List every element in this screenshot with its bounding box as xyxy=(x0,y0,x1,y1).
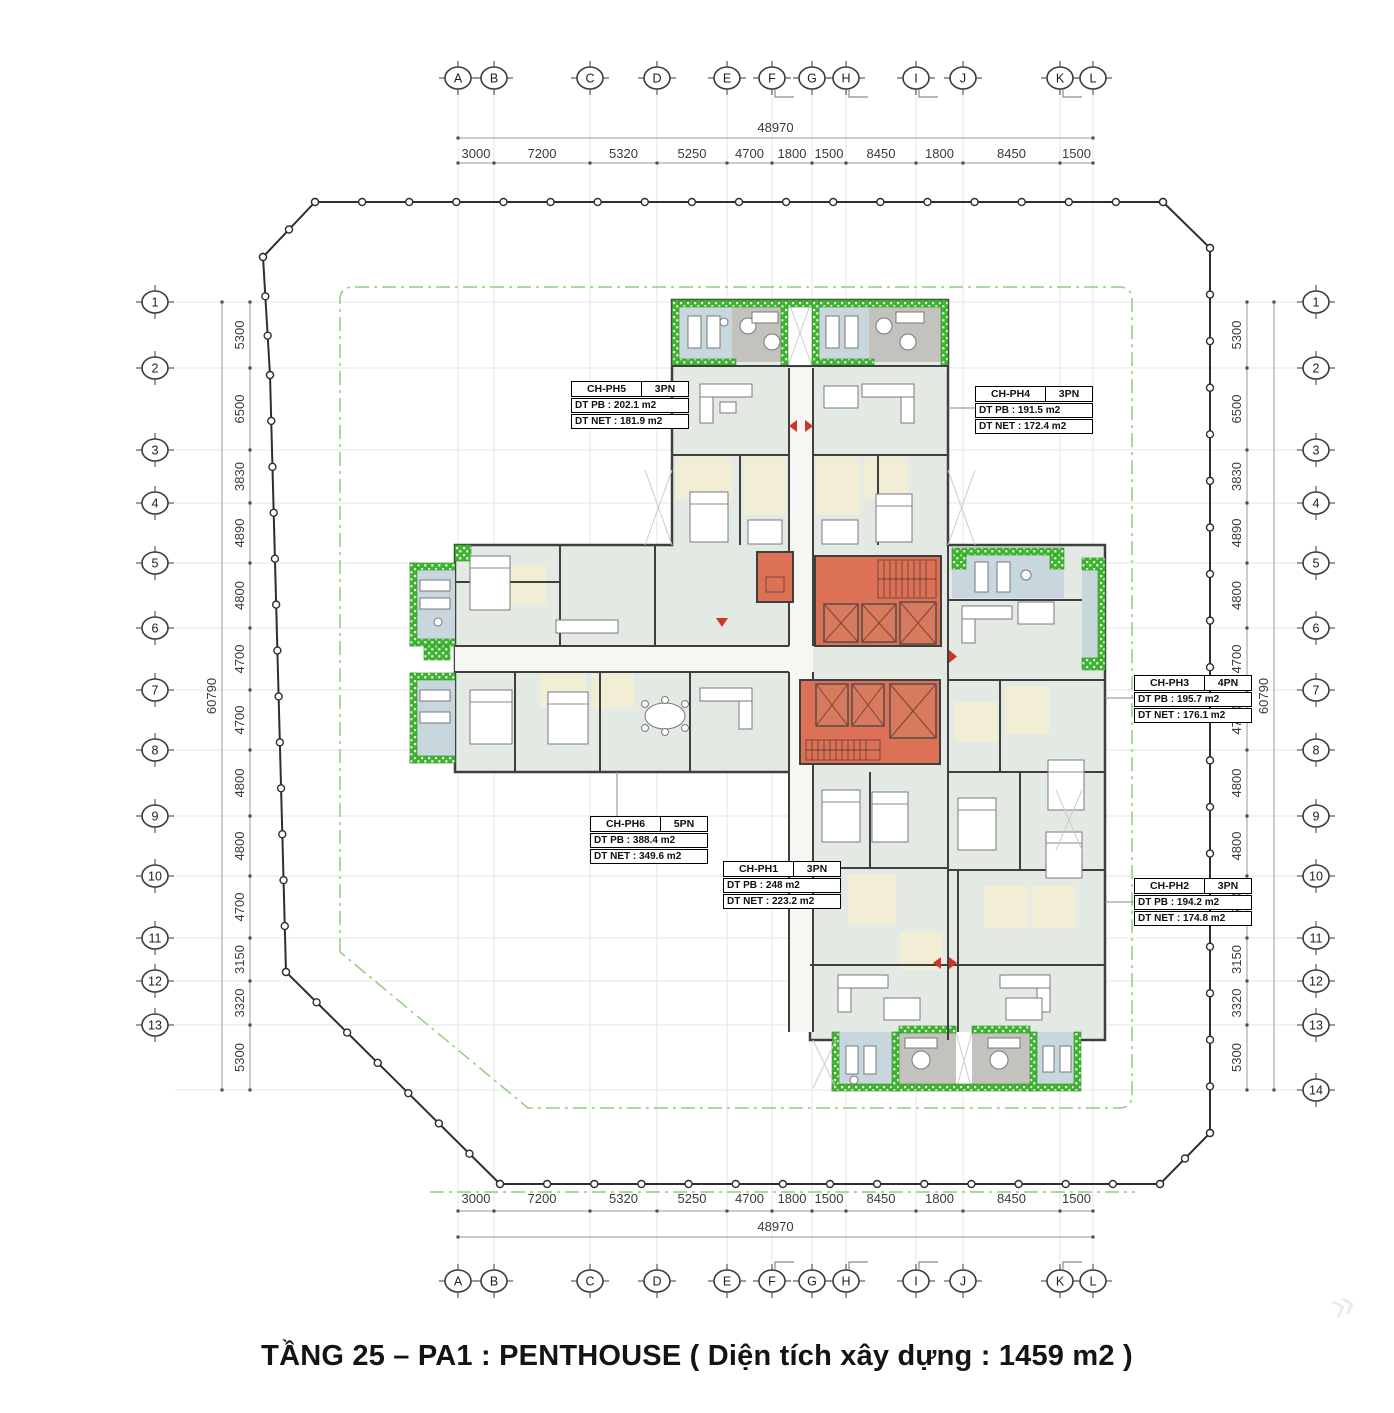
svg-text:5: 5 xyxy=(152,557,159,571)
axis-bubble-L: L xyxy=(1074,61,1112,95)
axis-bubble-14: 14 xyxy=(1297,1073,1335,1107)
svg-text:C: C xyxy=(585,72,594,86)
dimension-label: 4700 xyxy=(232,893,247,922)
svg-text:13: 13 xyxy=(1309,1019,1323,1033)
dimension-label: 5300 xyxy=(1229,321,1244,350)
apartment-net-area: DT NET : 349.6 m2 xyxy=(590,849,708,864)
dimension-label: 3830 xyxy=(232,462,247,491)
dimension-label: 1800 xyxy=(778,1191,807,1206)
axis-bubble-G: G xyxy=(793,1264,831,1298)
dimension-label: 1500 xyxy=(815,146,844,161)
dimension-label: 8450 xyxy=(867,146,896,161)
boundary-node xyxy=(1207,338,1214,345)
dimension-label: 3000 xyxy=(462,1191,491,1206)
svg-text:7: 7 xyxy=(152,684,159,698)
svg-text:G: G xyxy=(807,1275,817,1289)
svg-text:D: D xyxy=(652,1275,661,1289)
boundary-node xyxy=(1157,1181,1164,1188)
boundary-node xyxy=(779,1181,786,1188)
svg-text:11: 11 xyxy=(1310,932,1323,946)
dimension-label: 4890 xyxy=(232,519,247,548)
axis-bubble-B: B xyxy=(475,61,513,95)
dimension-label: 4700 xyxy=(232,645,247,674)
boundary-node xyxy=(594,199,601,206)
boundary-node xyxy=(638,1181,645,1188)
axis-bubble-7: 7 xyxy=(1297,673,1335,707)
dimension-label: 4800 xyxy=(232,581,247,610)
apartment-code: CH-PH2 xyxy=(1135,879,1205,893)
boundary-node xyxy=(1207,571,1214,578)
apartment-code: CH-PH3 xyxy=(1135,676,1205,690)
dimension-label: 5300 xyxy=(232,1043,247,1072)
apartment-net-area: DT NET : 176.1 m2 xyxy=(1134,708,1252,723)
boundary-node xyxy=(1207,384,1214,391)
boundary-node xyxy=(736,199,743,206)
apartment-label-ch-ph3: CH-PH34PN DT PB : 195.7 m2 DT NET : 176.… xyxy=(1134,675,1252,724)
apartment-gross-area: DT PB : 191.5 m2 xyxy=(975,403,1093,418)
boundary-node xyxy=(1207,990,1214,997)
boundary-node xyxy=(924,199,931,206)
boundary-node xyxy=(1112,199,1119,206)
axis-bubble-1: 1 xyxy=(1297,285,1335,319)
boundary-node xyxy=(1207,850,1214,857)
dimension-label: 8450 xyxy=(997,146,1026,161)
axis-bubble-K: K xyxy=(1041,61,1082,97)
axis-bubble-11: 11 xyxy=(1297,921,1335,955)
axis-bubble-C: C xyxy=(571,61,609,95)
boundary-node xyxy=(1015,1181,1022,1188)
apartment-code: CH-PH6 xyxy=(591,817,661,831)
boundary-node xyxy=(1207,291,1214,298)
svg-text:7: 7 xyxy=(1313,684,1320,698)
boundary-node xyxy=(264,332,271,339)
dimension-label: 4700 xyxy=(232,706,247,735)
apartment-bedrooms: 5PN xyxy=(661,817,707,831)
svg-text:F: F xyxy=(768,72,776,86)
boundary-node xyxy=(283,969,290,976)
axis-bubble-9: 9 xyxy=(1297,799,1335,833)
axis-bubble-11: 11 xyxy=(136,921,174,955)
boundary-node xyxy=(281,923,288,930)
boundary-node xyxy=(276,739,283,746)
svg-text:13: 13 xyxy=(148,1019,162,1033)
dimension-label: 5300 xyxy=(1229,1043,1244,1072)
axis-bubble-8: 8 xyxy=(1297,733,1335,767)
dimension-label: 5320 xyxy=(609,1191,638,1206)
boundary-node xyxy=(435,1120,442,1127)
dimension-label: 7200 xyxy=(528,146,557,161)
boundary-node xyxy=(271,555,278,562)
dimension-label: 3150 xyxy=(232,945,247,974)
svg-text:L: L xyxy=(1090,1275,1097,1289)
axis-bubble-K: K xyxy=(1041,1262,1082,1298)
dimension-label: 6500 xyxy=(232,395,247,424)
boundary-node xyxy=(732,1181,739,1188)
apartment-gross-area: DT PB : 388.4 m2 xyxy=(590,833,708,848)
boundary-node xyxy=(453,199,460,206)
svg-text:K: K xyxy=(1056,72,1065,86)
axis-bubble-3: 3 xyxy=(136,433,174,467)
dimension-label: 5250 xyxy=(678,1191,707,1206)
svg-text:6: 6 xyxy=(1313,622,1320,636)
boundary-node xyxy=(466,1150,473,1157)
boundary-node xyxy=(1207,1036,1214,1043)
dimension-label: 48970 xyxy=(757,1219,793,1234)
axis-bubble-6: 6 xyxy=(136,611,174,645)
svg-text:10: 10 xyxy=(148,870,162,884)
boundary-node xyxy=(1207,477,1214,484)
apartment-bedrooms: 3PN xyxy=(794,862,840,876)
boundary-node xyxy=(278,785,285,792)
apartment-label-ch-ph1: CH-PH13PN DT PB : 248 m2 DT NET : 223.2 … xyxy=(723,861,841,910)
svg-text:2: 2 xyxy=(152,362,159,376)
boundary-node xyxy=(877,199,884,206)
axis-bubble-6: 6 xyxy=(1297,611,1335,645)
svg-text:G: G xyxy=(807,72,817,86)
dimension-label: 4800 xyxy=(1229,581,1244,610)
boundary-node xyxy=(1207,1130,1214,1137)
svg-text:9: 9 xyxy=(1313,810,1320,824)
boundary-node xyxy=(280,877,287,884)
svg-text:3: 3 xyxy=(1313,444,1320,458)
axis-bubble-D: D xyxy=(638,61,676,95)
dimension-label: 3320 xyxy=(1229,989,1244,1018)
boundary-node xyxy=(406,199,413,206)
axis-bubble-9: 9 xyxy=(136,799,174,833)
dimension-label: 3150 xyxy=(1229,945,1244,974)
boundary-node xyxy=(1207,664,1214,671)
apartment-gross-area: DT PB : 248 m2 xyxy=(723,878,841,893)
svg-text:10: 10 xyxy=(1309,870,1323,884)
dimension-label: 5250 xyxy=(678,146,707,161)
axis-bubble-D: D xyxy=(638,1264,676,1298)
boundary-node xyxy=(1207,1083,1214,1090)
dimension-label: 4800 xyxy=(232,832,247,861)
axis-bubble-F: F xyxy=(753,61,794,97)
boundary-node xyxy=(547,199,554,206)
boundary-node xyxy=(685,1181,692,1188)
boundary-node xyxy=(1207,943,1214,950)
dimension-label: 1500 xyxy=(1062,1191,1091,1206)
boundary-node xyxy=(268,417,275,424)
axis-bubble-F: F xyxy=(753,1262,794,1298)
axis-bubble-I: I xyxy=(897,1262,938,1298)
apartment-gross-area: DT PB : 195.7 m2 xyxy=(1134,692,1252,707)
svg-text:9: 9 xyxy=(152,810,159,824)
floor-plan-sheet: 4897030007200532052504700180015008450180… xyxy=(0,0,1394,1413)
svg-text:L: L xyxy=(1090,72,1097,86)
boundary-node xyxy=(641,199,648,206)
apartment-code: CH-PH1 xyxy=(724,862,794,876)
axis-bubble-7: 7 xyxy=(136,673,174,707)
dimension-label: 6500 xyxy=(1229,395,1244,424)
svg-text:A: A xyxy=(454,72,463,86)
boundary-node xyxy=(260,254,267,261)
apartment-label-ch-ph6: CH-PH65PN DT PB : 388.4 m2 DT NET : 349.… xyxy=(590,816,708,865)
svg-text:I: I xyxy=(914,1275,917,1289)
svg-text:11: 11 xyxy=(149,932,162,946)
dimension-label: 1800 xyxy=(925,146,954,161)
boundary-node xyxy=(262,293,269,300)
svg-text:1: 1 xyxy=(1313,296,1320,310)
boundary-node xyxy=(312,199,319,206)
axis-bubble-10: 10 xyxy=(136,859,174,893)
axis-bubble-G: G xyxy=(793,61,831,95)
dimension-label: 4700 xyxy=(735,1191,764,1206)
axis-bubble-8: 8 xyxy=(136,733,174,767)
svg-text:12: 12 xyxy=(1309,975,1323,989)
apartment-bedrooms: 4PN xyxy=(1205,676,1251,690)
svg-text:C: C xyxy=(585,1275,594,1289)
boundary-node xyxy=(274,647,281,654)
axis-bubble-1: 1 xyxy=(136,285,174,319)
boundary-node xyxy=(827,1181,834,1188)
svg-text:4: 4 xyxy=(152,497,159,511)
boundary-node xyxy=(968,1181,975,1188)
svg-text:I: I xyxy=(914,72,917,86)
boundary-node xyxy=(1207,803,1214,810)
axis-bubble-5: 5 xyxy=(136,546,174,580)
axis-bubble-2: 2 xyxy=(1297,351,1335,385)
svg-text:B: B xyxy=(490,72,498,86)
axis-bubble-E: E xyxy=(708,61,746,95)
axis-bubble-2: 2 xyxy=(136,351,174,385)
axis-bubble-J: J xyxy=(944,61,982,95)
dimension-label: 5320 xyxy=(609,146,638,161)
boundary-node xyxy=(267,372,274,379)
apartment-net-area: DT NET : 172.4 m2 xyxy=(975,419,1093,434)
axis-bubble-L: L xyxy=(1074,1264,1112,1298)
svg-text:2: 2 xyxy=(1313,362,1320,376)
svg-text:6: 6 xyxy=(152,622,159,636)
svg-text:D: D xyxy=(652,72,661,86)
svg-text:3: 3 xyxy=(152,444,159,458)
axis-bubble-10: 10 xyxy=(1297,859,1335,893)
dimension-label: 4700 xyxy=(1229,645,1244,674)
svg-text:K: K xyxy=(1056,1275,1065,1289)
boundary-node xyxy=(1207,245,1214,252)
boundary-node xyxy=(688,199,695,206)
boundary-node xyxy=(500,199,507,206)
boundary-node xyxy=(591,1181,598,1188)
axis-bubble-E: E xyxy=(708,1264,746,1298)
boundary-node xyxy=(1207,431,1214,438)
dimension-label: 1800 xyxy=(925,1191,954,1206)
dimension-label: 3830 xyxy=(1229,462,1244,491)
boundary-node xyxy=(273,601,280,608)
dimension-label: 4800 xyxy=(232,769,247,798)
corridor-left-wing xyxy=(455,646,789,672)
dimension-label: 3000 xyxy=(462,146,491,161)
apartment-code: CH-PH4 xyxy=(976,387,1046,401)
apartment-label-ch-ph4: CH-PH43PN DT PB : 191.5 m2 DT NET : 172.… xyxy=(975,386,1093,435)
apartment-net-area: DT NET : 223.2 m2 xyxy=(723,894,841,909)
boundary-node xyxy=(1207,617,1214,624)
boundary-node xyxy=(405,1090,412,1097)
boundary-node xyxy=(1160,199,1167,206)
boundary-node xyxy=(874,1181,881,1188)
boundary-node xyxy=(783,199,790,206)
svg-text:5: 5 xyxy=(1313,557,1320,571)
apartment-bedrooms: 3PN xyxy=(1046,387,1092,401)
boundary-node xyxy=(1207,757,1214,764)
boundary-node xyxy=(344,1029,351,1036)
svg-text:B: B xyxy=(490,1275,498,1289)
axis-bubble-4: 4 xyxy=(136,486,174,520)
apartment-net-area: DT NET : 181.9 m2 xyxy=(571,414,689,429)
boundary-node xyxy=(971,199,978,206)
apartment-code: CH-PH5 xyxy=(572,382,642,396)
svg-text:8: 8 xyxy=(152,744,159,758)
dimension-label: 7200 xyxy=(528,1191,557,1206)
axis-bubble-13: 13 xyxy=(1297,1008,1335,1042)
boundary-node xyxy=(921,1181,928,1188)
svg-text:J: J xyxy=(960,72,966,86)
boundary-node xyxy=(359,199,366,206)
core-service-block-lower xyxy=(800,680,940,764)
boundary-node xyxy=(1182,1155,1189,1162)
axis-bubble-12: 12 xyxy=(1297,964,1335,998)
axis-bubble-H: H xyxy=(827,1262,868,1298)
svg-text:F: F xyxy=(768,1275,776,1289)
dimension-label: 4800 xyxy=(1229,769,1244,798)
svg-text:E: E xyxy=(723,1275,731,1289)
dimension-label: 1500 xyxy=(1062,146,1091,161)
axis-bubble-C: C xyxy=(571,1264,609,1298)
boundary-node xyxy=(1207,524,1214,531)
dimension-label: 60790 xyxy=(204,678,219,714)
boundary-node xyxy=(830,199,837,206)
axis-bubble-4: 4 xyxy=(1297,486,1335,520)
dimension-label: 4700 xyxy=(735,146,764,161)
svg-text:J: J xyxy=(960,1275,966,1289)
boundary-node xyxy=(270,509,277,516)
apartment-bedrooms: 3PN xyxy=(642,382,688,396)
svg-text:H: H xyxy=(841,72,850,86)
dimension-label: 1500 xyxy=(815,1191,844,1206)
apartment-gross-area: DT PB : 202.1 m2 xyxy=(571,398,689,413)
svg-text:1: 1 xyxy=(152,296,159,310)
svg-text:E: E xyxy=(723,72,731,86)
boundary-node xyxy=(374,1059,381,1066)
axis-bubble-I: I xyxy=(897,61,938,97)
sheet-title: TẦNG 25 – PA1 : PENTHOUSE ( Diện tích xâ… xyxy=(0,1340,1394,1373)
apartment-bedrooms: 3PN xyxy=(1205,879,1251,893)
dimension-label: 3320 xyxy=(232,989,247,1018)
svg-text:12: 12 xyxy=(148,975,162,989)
axis-bubble-3: 3 xyxy=(1297,433,1335,467)
boundary-node xyxy=(1018,199,1025,206)
dimension-label: 8450 xyxy=(997,1191,1026,1206)
axis-bubble-12: 12 xyxy=(136,964,174,998)
boundary-node xyxy=(275,693,282,700)
apartment-gross-area: DT PB : 194.2 m2 xyxy=(1134,895,1252,910)
axis-bubble-J: J xyxy=(944,1264,982,1298)
boundary-node xyxy=(1109,1181,1116,1188)
dimension-label: 1800 xyxy=(778,146,807,161)
svg-text:4: 4 xyxy=(1313,497,1320,511)
svg-text:A: A xyxy=(454,1275,463,1289)
dimension-label: 8450 xyxy=(867,1191,896,1206)
boundary-node xyxy=(1065,199,1072,206)
svg-text:H: H xyxy=(841,1275,850,1289)
axis-bubble-13: 13 xyxy=(136,1008,174,1042)
dimension-label: 5300 xyxy=(232,321,247,350)
svg-text:8: 8 xyxy=(1313,744,1320,758)
axis-bubble-A: A xyxy=(439,61,477,95)
dimension-label: 4800 xyxy=(1229,832,1244,861)
dimension-label: 60790 xyxy=(1256,678,1271,714)
boundary-node xyxy=(286,226,293,233)
axis-bubble-B: B xyxy=(475,1264,513,1298)
apartment-label-ch-ph2: CH-PH23PN DT PB : 194.2 m2 DT NET : 174.… xyxy=(1134,878,1252,927)
apartment-label-ch-ph5: CH-PH53PN DT PB : 202.1 m2 DT NET : 181.… xyxy=(571,381,689,430)
boundary-node xyxy=(279,831,286,838)
boundary-node xyxy=(497,1181,504,1188)
svg-text:14: 14 xyxy=(1309,1084,1323,1098)
boundary-node xyxy=(269,463,276,470)
dimension-label: 4890 xyxy=(1229,519,1244,548)
boundary-node xyxy=(313,999,320,1006)
axis-bubble-A: A xyxy=(439,1264,477,1298)
axis-bubble-5: 5 xyxy=(1297,546,1335,580)
boundary-node xyxy=(1062,1181,1069,1188)
axis-bubble-H: H xyxy=(827,61,868,97)
apartment-net-area: DT NET : 174.8 m2 xyxy=(1134,911,1252,926)
dimension-label: 48970 xyxy=(757,120,793,135)
boundary-node xyxy=(544,1181,551,1188)
